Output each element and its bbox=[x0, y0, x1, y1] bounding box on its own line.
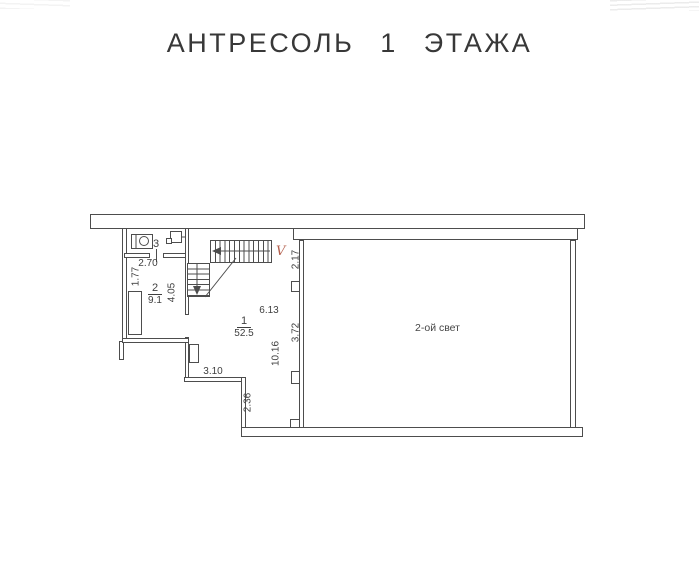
dim-177: 1.77 bbox=[131, 263, 142, 291]
room1-label: 1 52.5 bbox=[229, 315, 259, 340]
floor-plan-page: АНТРЕСОЛЬ 1 ЭТАЖА bbox=[0, 0, 699, 570]
scan-smudge-top-right bbox=[610, 0, 699, 11]
dim-217: 2.17 bbox=[291, 246, 302, 274]
room2-label: 2 9.1 bbox=[141, 282, 169, 307]
scan-smudge-top-left bbox=[0, 0, 70, 9]
dim-405: 4.05 bbox=[167, 279, 178, 307]
room2-number: 2 bbox=[148, 282, 162, 295]
dim-613: 6.13 bbox=[251, 305, 287, 316]
room1-area: 52.5 bbox=[229, 328, 259, 340]
page-title: АНТРЕСОЛЬ 1 ЭТАЖА bbox=[0, 28, 699, 59]
room3-number-text: 3 bbox=[153, 238, 159, 250]
stair-v-mark: V bbox=[276, 244, 285, 259]
dim-236: 2.36 bbox=[243, 389, 254, 417]
stair-arrowhead-down-icon bbox=[193, 286, 201, 295]
dim-372: 3.72 bbox=[291, 319, 302, 347]
stair-break-line bbox=[205, 258, 236, 297]
dim-310: 3.10 bbox=[195, 366, 231, 377]
room1-number: 1 bbox=[237, 315, 251, 328]
room3-number: 3 bbox=[149, 234, 163, 252]
room2-area: 9.1 bbox=[141, 295, 169, 307]
void-label: 2-ой свет bbox=[395, 322, 480, 334]
toilet-bowl-icon bbox=[140, 237, 149, 246]
dim-1016: 10.16 bbox=[271, 336, 282, 372]
stair-arrowhead-left-icon bbox=[212, 247, 221, 255]
stairs-annotation-layer bbox=[0, 200, 699, 460]
